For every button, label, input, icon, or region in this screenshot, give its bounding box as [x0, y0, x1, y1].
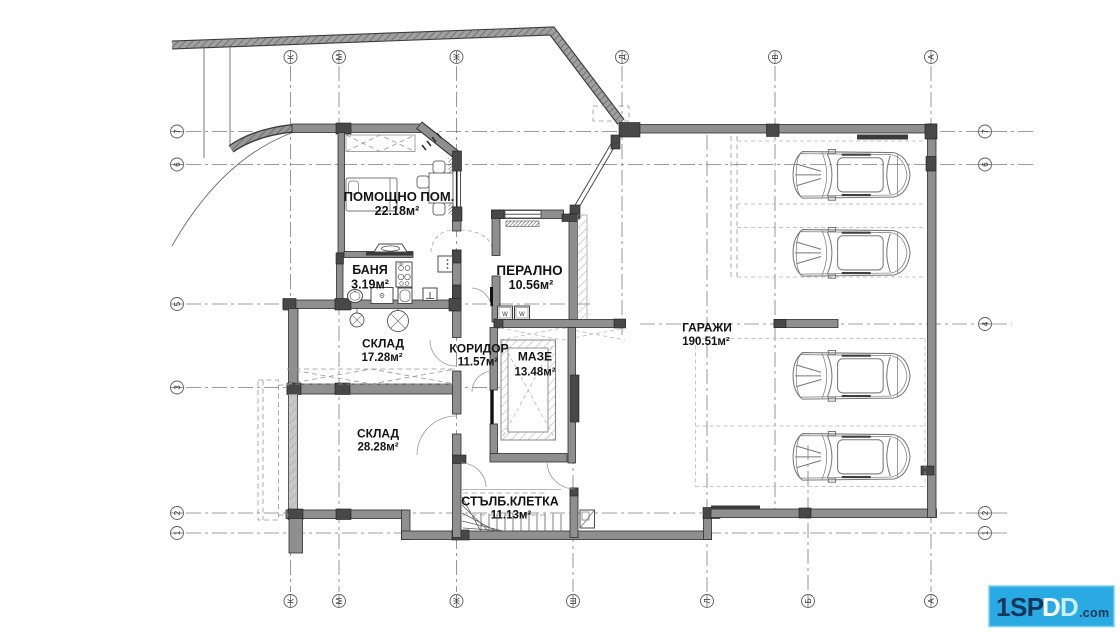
- svg-text:11.13м²: 11.13м²: [491, 510, 532, 522]
- svg-text:17.28м²: 17.28м²: [361, 352, 402, 364]
- svg-text:КОРИДОР: КОРИДОР: [449, 342, 508, 356]
- svg-text:2: 2: [173, 510, 182, 515]
- svg-text:Ш: Ш: [569, 597, 578, 604]
- svg-text:3: 3: [173, 385, 182, 390]
- svg-text:D: D: [1060, 592, 1079, 622]
- svg-text:1: 1: [981, 530, 990, 535]
- svg-text:СКЛАД: СКЛАД: [357, 427, 400, 441]
- svg-text:D: D: [1042, 592, 1061, 622]
- svg-text:СТЪЛБ.КЛЕТКА: СТЪЛБ.КЛЕТКА: [461, 495, 558, 509]
- svg-text:6: 6: [173, 162, 182, 167]
- svg-text:.com: .com: [1079, 606, 1109, 620]
- svg-text:ПОМОЩНО ПОМ.: ПОМОЩНО ПОМ.: [344, 189, 455, 204]
- svg-text:7: 7: [173, 129, 182, 134]
- svg-text:К: К: [287, 598, 296, 603]
- svg-text:А: А: [927, 598, 936, 604]
- svg-text:190.51м²: 190.51м²: [682, 336, 730, 348]
- svg-text:М: М: [335, 53, 344, 60]
- svg-text:7: 7: [981, 129, 990, 134]
- svg-text:11.57м²: 11.57м²: [458, 357, 499, 369]
- svg-text:4: 4: [981, 321, 990, 326]
- svg-text:W: W: [502, 312, 508, 318]
- svg-text:М: М: [335, 597, 344, 604]
- svg-text:В: В: [771, 54, 780, 59]
- svg-text:10.56м²: 10.56м²: [509, 278, 554, 292]
- svg-text:13.48м²: 13.48м²: [514, 367, 555, 379]
- svg-text:3.19м²: 3.19м²: [351, 278, 389, 292]
- svg-text:28.28м²: 28.28м²: [357, 442, 398, 454]
- svg-text:1: 1: [173, 530, 182, 535]
- svg-text:6: 6: [981, 162, 990, 167]
- svg-text:Ж: Ж: [453, 53, 462, 61]
- svg-text:Д: Д: [618, 54, 627, 60]
- svg-text:А: А: [927, 54, 936, 60]
- svg-text:W: W: [519, 312, 525, 318]
- svg-text:2: 2: [981, 510, 990, 515]
- svg-text:СКЛАД: СКЛАД: [362, 337, 405, 351]
- svg-text:5: 5: [173, 301, 182, 306]
- svg-text:ГАРАЖИ: ГАРАЖИ: [682, 321, 732, 335]
- svg-text:Л: Л: [703, 598, 712, 603]
- svg-text:К: К: [287, 54, 296, 59]
- svg-text:1SP: 1SP: [996, 592, 1044, 622]
- svg-text:22.18м²: 22.18м²: [375, 204, 420, 218]
- svg-text:МАЗЕ: МАЗЕ: [518, 350, 552, 364]
- svg-text:Ж: Ж: [453, 597, 462, 605]
- svg-text:БАНЯ: БАНЯ: [352, 263, 388, 277]
- svg-text:ПЕРАЛНО: ПЕРАЛНО: [496, 263, 562, 278]
- svg-text:Б: Б: [804, 598, 813, 603]
